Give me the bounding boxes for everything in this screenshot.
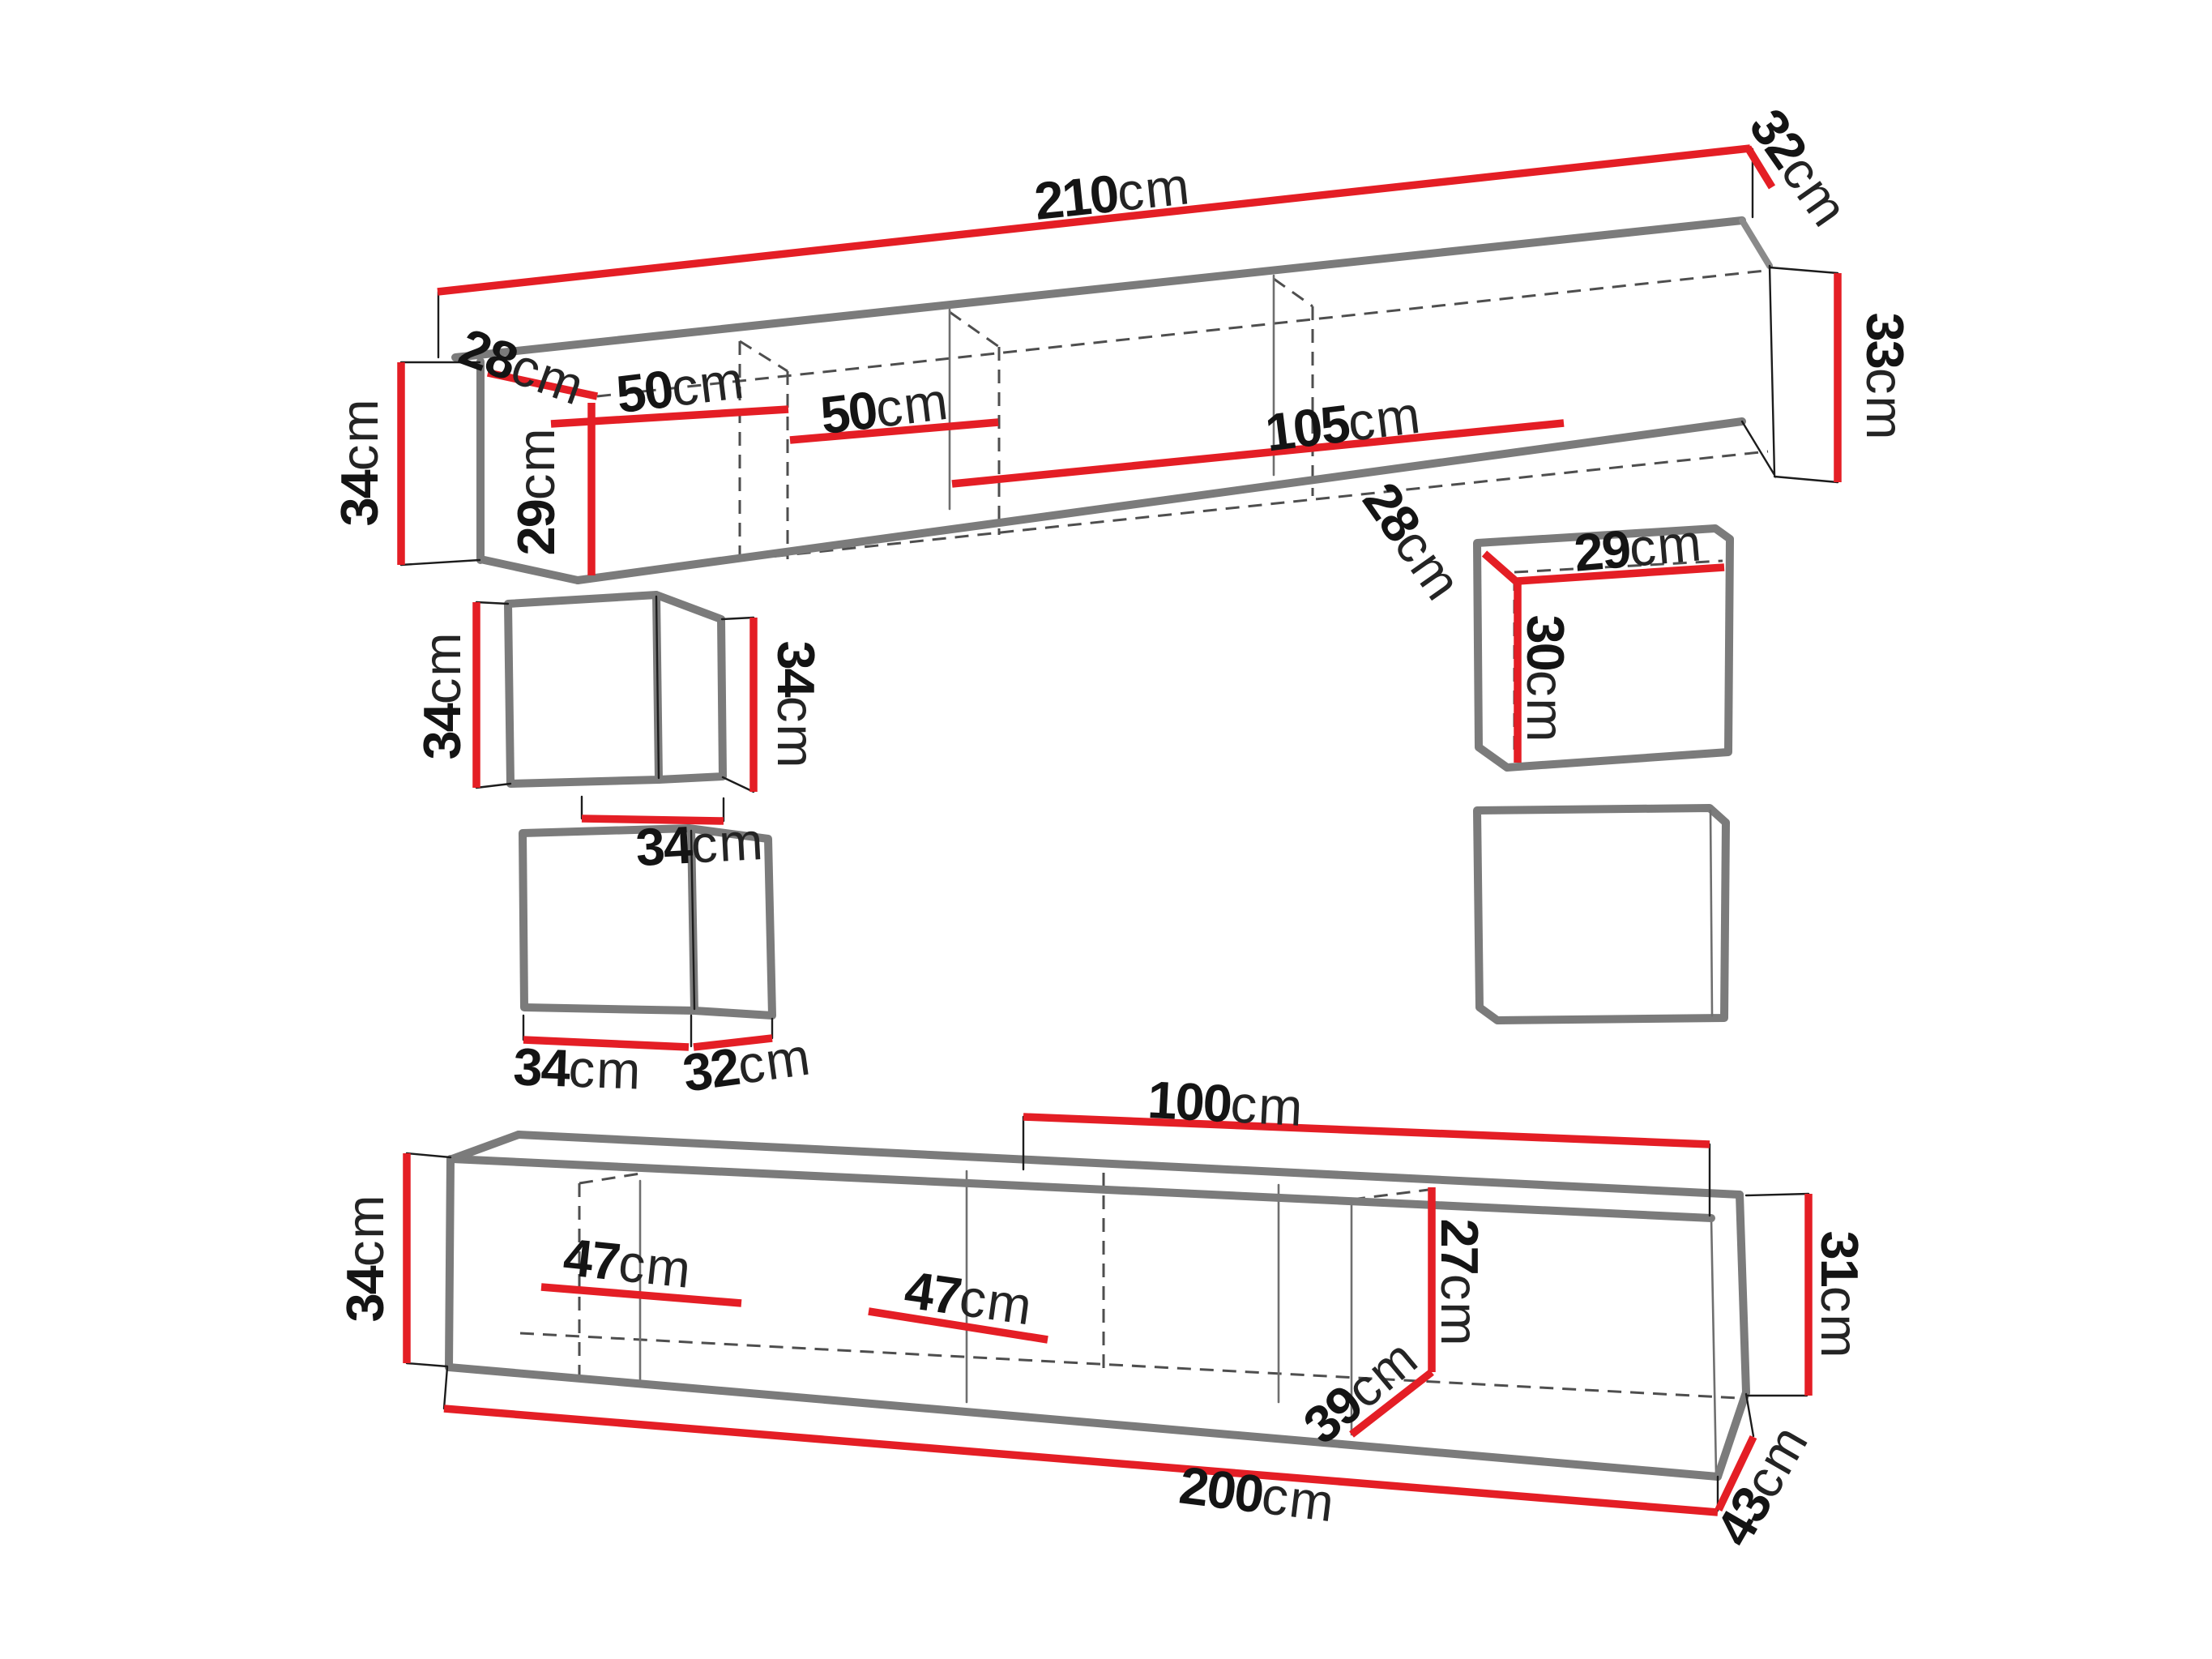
dim-34-stand-left-label: 34cm xyxy=(335,1194,395,1323)
shelf-back-top-edge xyxy=(597,271,1765,396)
dim-29-right-cube-label: 29cm xyxy=(1572,512,1706,583)
dim-32-lower-cube-label: 32cm xyxy=(679,1026,815,1102)
shelf-front-top-edge xyxy=(455,220,1742,357)
bracket-cube-bl xyxy=(476,784,510,788)
dim-34-lower-cube-label: 34cm xyxy=(512,1037,643,1101)
stand-right-back-edge xyxy=(1740,1195,1746,1392)
dim-34-cube-right-label: 34cm xyxy=(767,641,826,770)
shelf-right-face-outline xyxy=(1742,266,1774,475)
bracket-cube-tl xyxy=(476,602,508,604)
dim-34-cube-left-label: 34cm xyxy=(412,631,472,760)
dim-210-label: 210cm xyxy=(1031,156,1194,231)
dim-30-right-cube-label: 30cm xyxy=(1517,615,1576,744)
stand-left-edge xyxy=(449,1159,451,1367)
cube-l-side xyxy=(656,595,723,780)
dim-34-top-left-label: 34cm xyxy=(330,398,389,527)
cube-r2-panel-edge xyxy=(1710,810,1712,1015)
dim-28-top-left-label: 28cm xyxy=(452,317,593,417)
dim-29-top-left-label: 29cm xyxy=(506,427,566,556)
shelf-bottom-left-chamfer xyxy=(480,559,578,580)
tv-stand xyxy=(407,1117,1808,1512)
right-wall-cube-lower xyxy=(1477,808,1726,1020)
stand-left-top-diag xyxy=(452,1135,519,1159)
bracket-34-stand-bottom xyxy=(407,1363,447,1366)
shelf-front-bottom-edge xyxy=(578,421,1742,580)
dim-34-cube-bottom-label: 34cm xyxy=(634,810,767,876)
cube-l-front xyxy=(508,595,659,784)
dim-43-label: 43cm xyxy=(1704,1414,1820,1555)
dim-line-100 xyxy=(1023,1117,1710,1144)
bracket-cube-br xyxy=(723,777,754,792)
dim-27-label: 27cm xyxy=(1431,1219,1490,1348)
dim-100-label: 100cm xyxy=(1147,1069,1306,1136)
bracket-34-bottom xyxy=(401,560,480,565)
dim-105-label: 105cm xyxy=(1262,384,1425,462)
dim-33-label: 33cm xyxy=(1856,313,1915,442)
dim-line-105 xyxy=(952,423,1564,484)
stand-back-top-edge xyxy=(519,1135,1740,1195)
dim-47-b-label: 47cm xyxy=(901,1259,1037,1336)
dim-31-label: 31cm xyxy=(1811,1231,1870,1360)
stand-front-right-edge xyxy=(1711,1218,1716,1473)
diagram-canvas: 210cm32cm33cm34cm28cm29cm50cm50cm105cm28… xyxy=(0,0,2212,1659)
furniture-dimension-diagram: 210cm32cm33cm34cm28cm29cm50cm50cm105cm28… xyxy=(0,0,2212,1659)
bracket-33-top xyxy=(1770,267,1838,273)
bracket-33-bottom xyxy=(1774,477,1838,482)
dim-line-28-right xyxy=(1484,554,1518,583)
bracket-31-top xyxy=(1746,1194,1808,1195)
dim-200-label: 200cm xyxy=(1176,1455,1339,1533)
tick-200-left xyxy=(444,1367,447,1409)
tick-43-top xyxy=(1746,1394,1753,1436)
shelf-right-top-depth-edge xyxy=(1742,220,1770,266)
cube-r2-outline xyxy=(1477,808,1726,1020)
dim-50-b-label: 50cm xyxy=(818,370,953,445)
dim-28-right-cube-label: 28cm xyxy=(1352,472,1475,611)
divider-a-depth xyxy=(740,341,788,371)
divider-c-depth xyxy=(1274,279,1313,306)
bracket-cube-tr xyxy=(722,618,754,619)
bracket-34-stand-top xyxy=(407,1153,451,1157)
divider-b-depth xyxy=(950,312,999,347)
left-wall-cube xyxy=(476,595,754,821)
stand-divider1-depth xyxy=(579,1174,640,1183)
